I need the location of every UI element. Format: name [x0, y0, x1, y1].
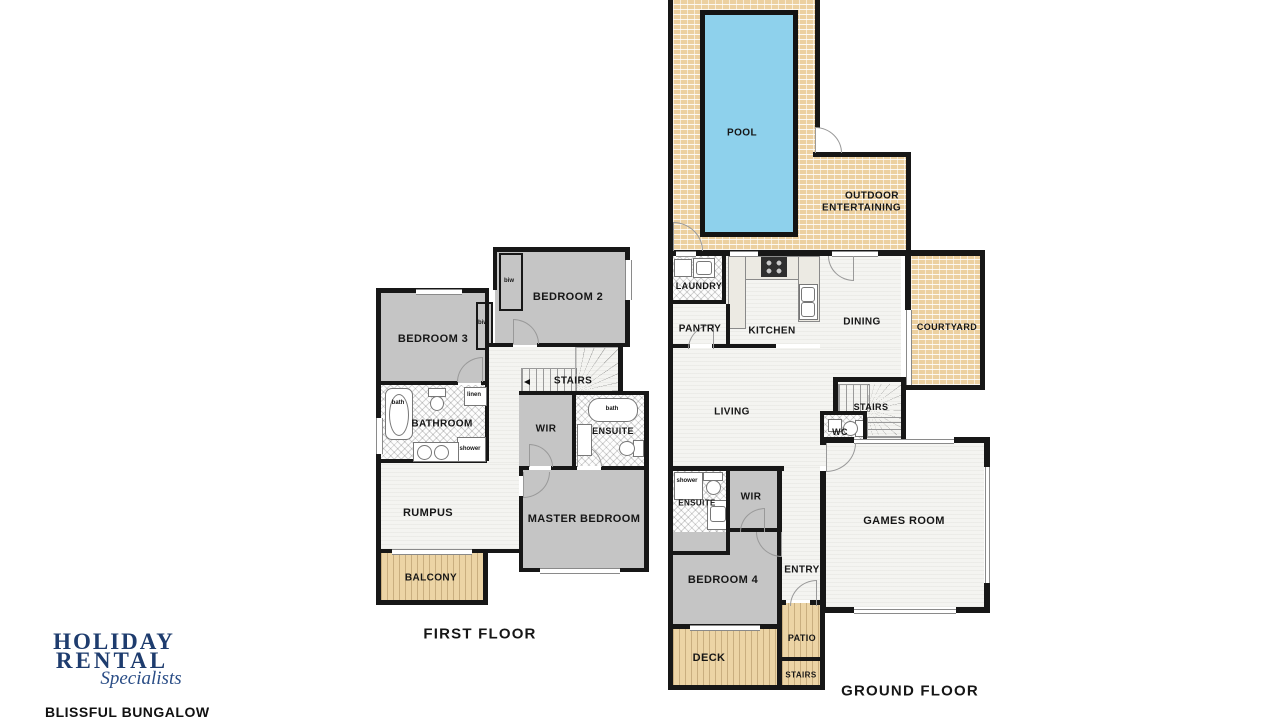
sliding-door	[392, 549, 472, 555]
window	[906, 310, 912, 385]
wall	[780, 657, 822, 661]
room-patio	[782, 603, 820, 657]
room-label: ENTERTAINING	[822, 203, 901, 214]
wall	[670, 551, 730, 555]
wall	[519, 391, 648, 395]
wall	[815, 0, 820, 128]
fixture-label: shower	[459, 446, 480, 452]
wall	[493, 247, 497, 290]
wall	[901, 377, 906, 440]
wall	[644, 391, 649, 572]
window	[625, 260, 632, 300]
window-wall	[854, 439, 954, 444]
room-pool	[700, 10, 798, 237]
wall	[483, 549, 523, 553]
wall	[537, 343, 630, 347]
wall	[376, 549, 392, 553]
room-label: OUTDOOR	[845, 191, 899, 202]
wall	[668, 344, 690, 348]
wall	[601, 466, 648, 470]
floorplan-page: BEDROOM 2 biw BEDROOM 3 biw STAIRS BATHR…	[0, 0, 1280, 720]
room-label: BEDROOM 4	[688, 574, 758, 586]
property-name: BLISSFUL BUNGALOW	[45, 704, 210, 720]
wall	[376, 600, 488, 605]
room-courtyard	[911, 256, 980, 385]
wall	[833, 377, 838, 415]
wall	[668, 300, 726, 304]
wall	[833, 377, 906, 382]
toilet-bowl	[430, 396, 444, 411]
room-rumpus	[381, 463, 519, 549]
wall	[905, 256, 911, 310]
room-label: RUMPUS	[403, 507, 453, 519]
fixture-label: bath	[606, 406, 619, 412]
basin-icon	[417, 445, 432, 460]
wall	[984, 437, 990, 467]
wall	[905, 385, 985, 390]
floor-title: FIRST FLOOR	[423, 626, 536, 643]
room-label: WIR	[536, 424, 557, 435]
room-label: PANTRY	[679, 324, 721, 335]
wall	[493, 247, 630, 252]
sink-bowl	[801, 302, 815, 317]
room-label: DECK	[693, 652, 726, 664]
logo-specialists: Specialists	[100, 668, 181, 690]
room-label: GAMES ROOM	[863, 515, 945, 527]
room-label: STAIRS	[785, 671, 816, 680]
room-label: COURTYARD	[917, 322, 977, 332]
wall	[712, 344, 776, 348]
room-label: ENTRY	[784, 565, 820, 576]
window	[540, 568, 620, 574]
wall	[980, 250, 985, 390]
basin-icon	[434, 445, 449, 460]
washer-inner	[696, 261, 712, 275]
room-label: WC	[832, 427, 848, 437]
door-arc	[815, 127, 842, 153]
basin-icon	[710, 506, 726, 522]
window-wall	[854, 609, 956, 614]
wall	[668, 250, 985, 256]
room-label: BEDROOM 2	[533, 291, 603, 303]
window	[676, 251, 696, 257]
wall	[668, 0, 673, 252]
room-label: POOL	[727, 128, 757, 139]
wall	[572, 395, 576, 466]
wall	[726, 470, 730, 552]
wall	[551, 466, 577, 470]
wall	[483, 549, 488, 605]
window	[730, 251, 758, 257]
room-label: ENSUITE	[678, 499, 715, 508]
room-label: DINING	[843, 317, 880, 328]
window	[416, 289, 462, 295]
window	[376, 418, 383, 454]
laundry-tub-icon	[674, 259, 692, 277]
wall	[906, 152, 911, 255]
fixture-label: bath	[392, 400, 405, 406]
room-label: ENSUITE	[592, 426, 634, 436]
room-label: STAIRS	[554, 376, 592, 387]
wall	[722, 250, 726, 304]
room-label: LAUNDRY	[676, 281, 722, 291]
wall	[485, 290, 489, 383]
room-label: PATIO	[788, 633, 816, 643]
wall	[820, 600, 825, 690]
wall	[618, 347, 623, 395]
wall	[519, 496, 523, 572]
wall	[668, 685, 825, 690]
wall	[956, 607, 990, 613]
wall	[820, 607, 854, 613]
room-label: BALCONY	[405, 573, 457, 584]
wall	[820, 471, 826, 613]
room-label: MASTER BEDROOM	[528, 513, 641, 525]
fixture-label: linen	[467, 392, 481, 398]
room-label: LIVING	[714, 407, 750, 418]
stairs-direction-arrow	[524, 379, 530, 385]
sink-bowl	[801, 287, 815, 302]
vanity-icon	[577, 424, 592, 456]
shower-icon	[674, 472, 703, 500]
stairs-run	[867, 417, 903, 438]
toilet-bowl	[619, 441, 635, 456]
wall	[376, 381, 458, 385]
floor-title: GROUND FLOOR	[841, 683, 979, 700]
room-label: BEDROOM 3	[398, 333, 468, 345]
window-wall	[985, 467, 990, 583]
fixture-label: shower	[676, 478, 697, 484]
wall	[726, 304, 730, 348]
room-label: biw	[478, 320, 488, 326]
room-label: BATHROOM	[411, 419, 472, 430]
wall	[777, 600, 786, 605]
sliding-door	[690, 625, 760, 631]
wall	[489, 343, 513, 347]
room-label: STAIRS	[854, 402, 889, 412]
toilet-bowl	[706, 480, 721, 495]
room-label: KITCHEN	[748, 326, 795, 337]
stove-icon	[761, 257, 787, 277]
kitchen-bench	[728, 256, 746, 329]
room-label: biw	[504, 278, 514, 284]
room-label: WIR	[741, 492, 762, 503]
